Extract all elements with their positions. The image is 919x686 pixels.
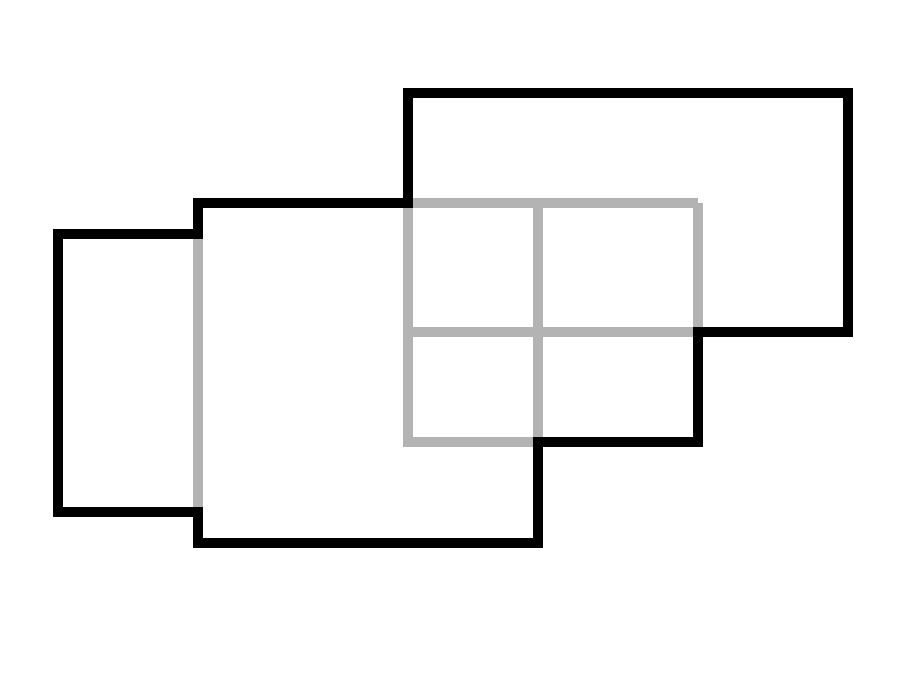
hidden-edge-inner-rect-top-left-bottom-edges (408, 203, 698, 442)
union-outline (58, 93, 848, 543)
diagram-canvas (0, 0, 919, 686)
overlapping-rectangles-diagram (0, 0, 919, 686)
